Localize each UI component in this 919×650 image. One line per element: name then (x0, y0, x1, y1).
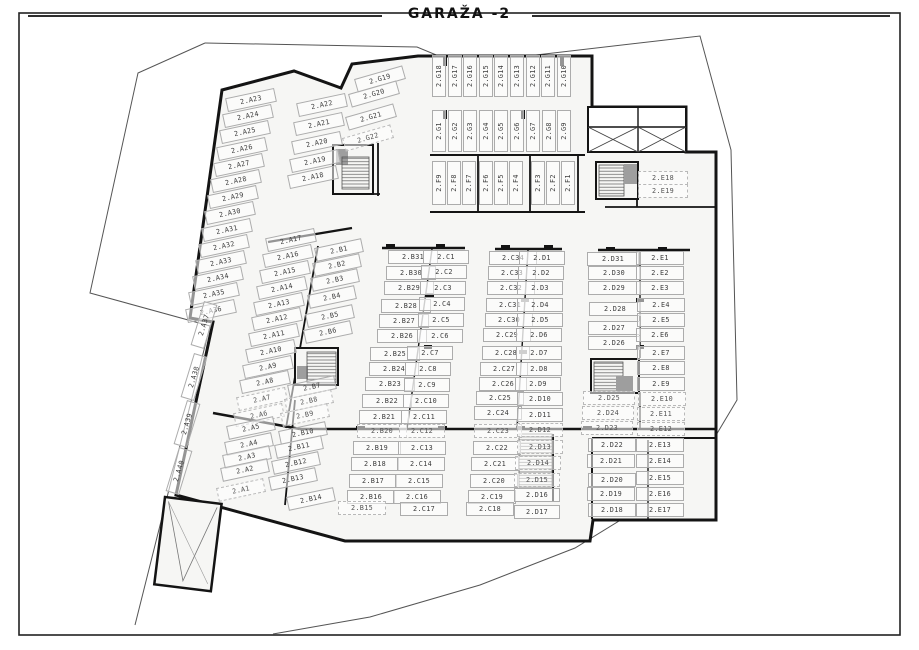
parking-stall: 2.E3 (636, 281, 684, 295)
parking-stall: 2.D22 (588, 438, 636, 452)
elevator-icon (616, 376, 633, 392)
parking-stall: 2.D14 (515, 456, 561, 470)
parking-stall: 2.E15 (636, 471, 684, 485)
parking-stall: 2.D21 (587, 454, 635, 468)
parking-stall: 2.D19 (587, 487, 635, 501)
parking-stall: 2.D24 (582, 406, 634, 420)
parking-stall: 2.F2 (546, 161, 560, 205)
parking-stall: 2.E4 (637, 298, 685, 312)
parking-stall: 2.E18 (638, 171, 688, 185)
parking-stall: 2.E19 (638, 184, 688, 198)
parking-stall: 2.E10 (638, 392, 686, 406)
parking-stall: 2.D29 (588, 281, 640, 295)
parking-stall: 2.D4 (517, 298, 563, 312)
parking-stall: 2.C18 (466, 502, 514, 516)
parking-stall: 2.E6 (636, 328, 684, 342)
parking-stall: 2.C11 (401, 410, 447, 424)
stairwell-east (591, 359, 639, 393)
parking-stall: 2.B15 (338, 501, 386, 515)
shaft-icon (588, 107, 686, 152)
parking-stall: 2.E11 (637, 407, 685, 421)
parking-stall: 2.E13 (636, 438, 684, 452)
parking-stall: 2.C2 (421, 265, 467, 279)
parking-stall: 2.C13 (398, 441, 446, 455)
parking-stall: 2.D17 (514, 505, 560, 519)
parking-stall: 2.D30 (588, 266, 640, 280)
parking-stall: 2.E1 (636, 251, 684, 265)
parking-stall: 2.F3 (531, 161, 545, 205)
floor-plan-garage-level-2: 2.A232.A242.A252.A262.A272.A282.A292.A30… (0, 0, 919, 650)
parking-stall: 2.C7 (407, 346, 453, 360)
parking-stall: 2.C3 (420, 281, 466, 295)
parking-stall: 2.C9 (404, 378, 450, 392)
parking-stall: 2.G11 (541, 55, 555, 97)
parking-stall: 2.E12 (637, 422, 685, 436)
parking-stall: 2.F7 (462, 161, 476, 205)
parking-stall: 2.C8 (405, 362, 451, 376)
parking-stall: 2.C17 (400, 502, 448, 516)
parking-stall: 2.E14 (636, 454, 684, 468)
parking-stall: 2.D12 (517, 423, 563, 437)
parking-stall: 2.G14 (494, 55, 508, 97)
parking-stall: 2.B17 (349, 474, 397, 488)
parking-stall: 2.F5 (494, 161, 508, 205)
parking-stall: 2.E8 (637, 361, 685, 375)
parking-stall: 2.D9 (515, 377, 561, 391)
parking-stall: 2.C5 (418, 313, 464, 327)
parking-stall: 2.F6 (479, 161, 493, 205)
parking-stall: 2.D27 (588, 321, 640, 335)
stairwell-northwest (333, 145, 373, 194)
parking-stall: 2.G15 (479, 55, 493, 97)
parking-stall: 2.G13 (510, 55, 524, 97)
parking-stall: 2.G16 (463, 55, 477, 97)
parking-stall: 2.C20 (470, 474, 518, 488)
parking-stall: 2.C23 (474, 424, 522, 438)
parking-stall: 2.C15 (395, 474, 443, 488)
parking-stall: 2.D23 (581, 421, 633, 435)
parking-stall: 2.E7 (637, 346, 685, 360)
parking-stall: 2.F9 (432, 161, 446, 205)
parking-stall: 2.C1 (423, 250, 469, 264)
parking-stall: 2.D28 (589, 302, 641, 316)
parking-stall: 2.C12 (399, 424, 445, 438)
parking-stall: 2.E5 (637, 313, 685, 327)
parking-stall: 2.D26 (588, 336, 640, 350)
parking-stall: 2.D7 (516, 346, 562, 360)
parking-stall: 2.E2 (636, 266, 684, 280)
parking-stall: 2.G4 (479, 110, 493, 152)
parking-stall: 2.G10 (557, 55, 571, 97)
parking-stall: 2.D10 (517, 392, 563, 406)
parking-stall: 2.D2 (518, 266, 564, 280)
parking-stall: 2.G1 (432, 110, 446, 152)
parking-stall: 2.G17 (448, 55, 462, 97)
parking-stall: 2.D20 (588, 473, 636, 487)
parking-stall: 2.C21 (471, 457, 519, 471)
parking-stall: 2.G9 (557, 110, 571, 152)
parking-stall: 2.D13 (517, 440, 563, 454)
parking-stall: 2.D31 (587, 252, 639, 266)
parking-stall: 2.F4 (509, 161, 523, 205)
parking-stall: 2.G12 (526, 55, 540, 97)
parking-stall: 2.D11 (517, 408, 563, 422)
elevator-icon (624, 164, 637, 184)
parking-stall: 2.C4 (419, 297, 465, 311)
parking-stall: 2.D16 (514, 488, 560, 502)
stair-icon (599, 165, 624, 196)
parking-stall: 2.E17 (636, 503, 684, 517)
parking-stall: 2.G8 (542, 110, 556, 152)
stair-icon (342, 157, 369, 189)
parking-stall: 2.E9 (637, 377, 685, 391)
parking-stall: 2.B18 (351, 457, 399, 471)
parking-stall: 2.C22 (473, 441, 521, 455)
parking-stall: 2.D3 (517, 281, 563, 295)
parking-stall: 2.G2 (448, 110, 462, 152)
parking-stall: 2.F8 (447, 161, 461, 205)
parking-stall: 2.G3 (463, 110, 477, 152)
parking-stall: 2.D15 (514, 473, 560, 487)
parking-stall: 2.D5 (517, 313, 563, 327)
parking-stall: 2.B19 (353, 441, 401, 455)
parking-stall: 2.C6 (417, 329, 463, 343)
parking-stall: 2.G6 (510, 110, 524, 152)
elevator-icon (297, 366, 308, 379)
parking-stall: 2.G18 (432, 55, 446, 97)
parking-stall: 2.D6 (516, 328, 562, 342)
parking-stall: 2.G5 (494, 110, 508, 152)
parking-stall: 2.C10 (403, 394, 449, 408)
parking-stall: 2.E16 (636, 487, 684, 501)
parking-stall: 2.D1 (519, 251, 565, 265)
parking-stall: 2.C14 (397, 457, 445, 471)
parking-stall: 2.D8 (516, 362, 562, 376)
parking-stall: 2.D18 (588, 503, 636, 517)
parking-stall: 2.C24 (474, 406, 522, 420)
stairwell-northeast (596, 162, 638, 199)
parking-stall: 2.G7 (526, 110, 540, 152)
ramp-icon (154, 497, 221, 591)
parking-stall: 2.D25 (583, 391, 635, 405)
parking-stall: 2.F1 (561, 161, 575, 205)
page-title: GARAŽA -2 (0, 6, 919, 22)
